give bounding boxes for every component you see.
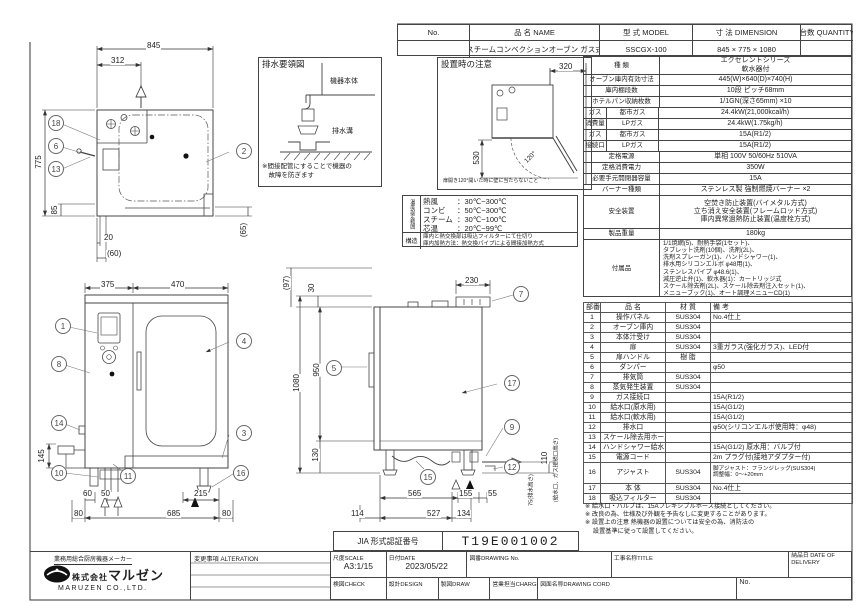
part-material [666, 443, 711, 453]
balloon-8: 8 [51, 356, 67, 372]
part-note [711, 383, 853, 393]
spec-label: 製品重量 [584, 229, 660, 239]
part-no: 1 [584, 313, 601, 323]
spec-value: 445(W)×640(D)×740(H) [660, 75, 851, 85]
temp-row: 熱風：30℃~300℃ [423, 197, 575, 206]
part-name: 排水口 [601, 423, 666, 433]
install-note: 扉開き120°開いた時に壁に当たらないこと [443, 179, 538, 184]
spec-row-gas-use-lp: 消費量 LPガス 24.4kW(1.75kg/h) [584, 118, 851, 129]
balloon-18: 18 [48, 115, 64, 131]
spec-value: 単相 100V 50/60Hz 510VA [660, 152, 851, 162]
spec-row-weight: 製品重量 180kg [584, 228, 851, 239]
spec-row-gas-conn-city: ガス 都市ガス 15A(R1/2) [584, 129, 851, 140]
spec-value: 10段 ピッチ68mm [660, 86, 851, 96]
drain-body-label: 機器本体 [330, 78, 358, 85]
temp-value: ：30℃~100℃ [457, 215, 507, 224]
part-material: SUS304 [666, 383, 711, 393]
balloon-14: 14 [51, 415, 67, 431]
draw-cell: 製図DRAW [439, 578, 491, 599]
parts-header: 部番 品 名 材 質 備 考 [584, 303, 853, 313]
dim-375: 375 [100, 281, 115, 289]
spec-label: 定格電源 [584, 152, 660, 162]
parts-row: 11給水口(軟水用)15A(G1/2) [584, 413, 853, 423]
dim-565: 565 [407, 490, 422, 498]
balloon-4: 4 [236, 333, 252, 349]
structure-header-text: 構造 [405, 236, 417, 245]
part-name: 給水口(原水用) [601, 403, 666, 413]
spec-row-pan: ホテルパン収納枚数 1/1GN(深さ65mm) ×10 [584, 96, 851, 107]
check-label: 検図CHECK [333, 579, 365, 588]
part-name: 操作パネル [601, 313, 666, 323]
drawing-cord-label: 図面名称DRAWING CORD [540, 579, 610, 588]
part-no: 15 [584, 453, 601, 463]
spec-row-kind: 種 類 エクセレントシリーズ軟水器付 [584, 57, 851, 74]
dim-130: 130 [312, 448, 320, 461]
dim-950: 950 [313, 363, 321, 376]
dim-470: 470 [170, 281, 185, 289]
dim-530: 530 [473, 151, 481, 164]
product-model: SSCGX-100 [600, 41, 693, 57]
balloon-16: 16 [233, 465, 249, 481]
spec-label: 都市ガス [607, 108, 659, 118]
accessory-line: メニューブック(1)、オート調理メニューCD(1) [663, 290, 790, 297]
part-note [711, 323, 853, 333]
date-cell: 日付DATE 2023/05/22 [387, 552, 468, 577]
parts-row: 15電源コード2m プラグ付(接地アダプター付) [584, 453, 853, 463]
part-no: 3 [584, 333, 601, 343]
part-material [666, 363, 711, 373]
company-name-en: MARUZEN CO.,LTD. [58, 585, 148, 592]
spec-value: 空焚き防止装置(バイメタル方式) [704, 200, 807, 208]
part-material [666, 423, 711, 433]
part-material: SUS304 [666, 323, 711, 333]
spec-label: LPガス [607, 141, 659, 151]
jia-number: T19E001002 [443, 532, 578, 550]
part-name: 扉 [601, 343, 666, 353]
delivery-cell: 納品日 DATE OF DELIVERY [789, 552, 851, 577]
jia-certification: JIA 形式認証番号 T19E001002 [333, 531, 579, 551]
dim-65paren: (65) [240, 223, 248, 237]
part-no: 17 [584, 484, 601, 494]
temp-value: ：30℃~300℃ [457, 197, 507, 206]
part-name: ダンパー [601, 363, 666, 373]
title-table: No. 品 名 NAME 型 式 MODEL 寸 法 DIMENSION 台数 … [397, 24, 852, 56]
parts-row: 9ガス接続口15A(R1/2) [584, 393, 853, 403]
title-col-name: 品 名 NAME [470, 25, 600, 41]
part-name: 扉ハンドル [601, 353, 666, 363]
project-title-label: 工事名称TITLE [614, 553, 653, 562]
dim-110-note: (給水口、ガス接続口高さ) [554, 438, 560, 502]
parts-header-material: 材 質 [666, 303, 711, 313]
temp-row: スチーム：30℃~100℃ [423, 215, 575, 224]
balloon-5: 5 [326, 360, 342, 376]
spec-label: 都市ガス [607, 130, 659, 140]
dim-80-right: 80 [221, 510, 232, 518]
spec-value: 15A(R1/2) [659, 130, 851, 140]
dim-155: 155 [458, 490, 473, 498]
project-title-cell: 工事名称TITLE [612, 552, 789, 577]
footnote-line: 設置基準に従って設置してください。 [585, 528, 775, 536]
company-name-main: マルゼン [108, 568, 164, 583]
part-no: 18 [584, 494, 601, 504]
part-name: ガス接続口 [601, 393, 666, 403]
spec-row-burner: バーナー種類 ステンレス製 強制燃焼バーナー ×2 [584, 184, 851, 195]
balloon-9: 9 [504, 419, 520, 435]
spec-label: バーナー種類 [584, 185, 660, 195]
parts-table-body: 1操作パネルSUS304No.4仕上2オーブン庫内SUS3043本体汁受けSUS… [584, 313, 853, 504]
part-name: 排気筒 [601, 373, 666, 383]
company-block: 業務用総合厨房機器メーカー 株式会社マルゼン MARUZEN CO.,LTD. [30, 551, 190, 600]
dim-775: 775 [35, 155, 43, 168]
spec-value: 180kg [660, 229, 851, 239]
company-name: 株式会社マルゼン [72, 565, 164, 584]
spec-value: 24.4kW(21,000kcal/h) [659, 108, 851, 118]
balloon-6: 6 [48, 138, 64, 154]
drain-title: 排水要領図 [262, 60, 305, 69]
parts-row: 14ハンドシャワー給水口15A(G1/2) 原水用：バルブ付 [584, 443, 853, 453]
dim-80-left: 80 [73, 510, 84, 518]
delivery-label: 納品日 DATE OF DELIVERY [791, 553, 851, 567]
balloon-11: 11 [120, 468, 136, 484]
draw-label: 製図DRAW [441, 579, 470, 588]
spec-row-gas-use-city: ガス 都市ガス 24.4kW(21,000kcal/h) [584, 107, 851, 118]
balloon-15: 15 [420, 469, 436, 485]
part-no: 12 [584, 423, 601, 433]
front-view [58, 295, 228, 516]
footnote-line: ※ 給水口・バルブは、15Aフレキシブルホース接続としてください。 [585, 503, 775, 511]
spec-label: 種 類 [584, 57, 660, 74]
spec-label: 庫内棚段数 [584, 86, 660, 96]
balloon-3: 3 [236, 425, 252, 441]
dim-55: 55 [487, 490, 498, 498]
parts-row: 6ダンパーφ50 [584, 363, 853, 373]
charge-cell: 営業担当CHARGE [490, 578, 538, 599]
alteration-block: 変更事項 ALTERATION [190, 551, 330, 600]
drain-note-line1: ※間接配管にすることで機器の [262, 164, 352, 171]
spec-value: エクセレントシリーズ [721, 57, 791, 65]
dim-30: 30 [308, 284, 316, 293]
balloon-17: 17 [504, 375, 520, 391]
spec-value: 15A(R1/2) [659, 141, 851, 151]
part-note: φ50(シリコンエルボ使用時：φ48) [711, 423, 853, 433]
part-material: SUS304 [666, 343, 711, 353]
balloon-2: 2 [236, 143, 252, 159]
install-title: 設置時の注意 [441, 60, 492, 69]
parts-row: 10給水口(原水用)15A(G1/2) [584, 403, 853, 413]
balloon-12: 12 [504, 459, 520, 475]
parts-row: 2オーブン庫内SUS304 [584, 323, 853, 333]
product-quantity [801, 41, 853, 57]
part-material [666, 393, 711, 403]
part-no: 7 [584, 373, 601, 383]
balloon-10: 10 [51, 465, 67, 481]
dim-60paren: (60) [106, 250, 122, 258]
dim-97paren: (97) [283, 276, 291, 290]
parts-row: 7排気筒SUS304 [584, 373, 853, 383]
dim-50: 50 [100, 490, 111, 498]
parts-row: 12排水口φ50(シリコンエルボ使用時：φ48) [584, 423, 853, 433]
dim-75-drain: 75(排水高さ) [529, 474, 535, 506]
dim-20: 20 [103, 234, 114, 242]
title-col-no: No. [398, 25, 470, 41]
part-no: 13 [584, 433, 601, 443]
part-name: 電源コード [601, 453, 666, 463]
spec-value: 立ち消え安全装置(フレームロッド方式) [694, 208, 817, 216]
title-col-model: 型 式 MODEL [600, 25, 693, 41]
spec-value: ステンレス製 強制燃焼バーナー ×2 [660, 185, 851, 195]
parts-header-name: 品 名 [601, 303, 666, 313]
part-note: No.4仕上 [711, 484, 853, 494]
accessory-line: スケール除去剤(2L)、スケール除去剤注入セット(1)、 [663, 283, 809, 290]
no-cell: No. [737, 578, 851, 599]
parts-row: 1操作パネルSUS304No.4仕上 [584, 313, 853, 323]
part-no: 5 [584, 353, 601, 363]
alteration-label: 変更事項 ALTERATION [194, 554, 258, 563]
spec-row-power: 定格電源 単相 100V 50/60Hz 510VA [584, 151, 851, 162]
check-cell: 検図CHECK [331, 578, 387, 599]
part-material: 樹 脂 [666, 353, 711, 363]
title-col-dimension: 寸 法 DIMENSION [693, 25, 801, 41]
part-material [666, 403, 711, 413]
footnote-line: ※ 設置上の注意 熱機器の設置については安全の為、消防法の [585, 519, 775, 527]
part-no: 8 [584, 383, 601, 393]
part-name: スケール除去用ホース [601, 433, 666, 443]
part-name: 本 体 [601, 484, 666, 494]
accessory-line: ステンレスパイプ φ48.6(1)、 [663, 269, 743, 276]
side-dimensions [286, 268, 556, 522]
spec-label: ホテルパン収納枚数 [584, 97, 660, 107]
part-note: No.4仕上 [711, 313, 853, 323]
jia-label: JIA 形式認証番号 [334, 532, 443, 550]
spec-row-breaker: 必要手元開閉器容量 15A [584, 173, 851, 184]
part-note: 15A(R1/2) [711, 393, 853, 403]
part-no: 16 [584, 463, 601, 484]
dim-230: 230 [464, 277, 479, 285]
dim-110: 110 [541, 452, 549, 465]
scale-cell: 尺度SCALE A3:1/15 [331, 552, 387, 577]
accessory-line: 減圧逆止弁(1)、軟水器(1)：カートリッジ式 [663, 276, 782, 283]
part-material: SUS304 [666, 313, 711, 323]
accessory-line: 排水用シリコンエルボ φ48用(1)、 [663, 261, 756, 268]
part-material [666, 433, 711, 443]
part-name: 吸込フィルター [601, 494, 666, 504]
part-no: 2 [584, 323, 601, 333]
spec-table: 種 類 エクセレントシリーズ軟水器付 オーブン庫内有効寸法 445(W)×640… [583, 56, 852, 297]
dim-845: 845 [146, 42, 161, 50]
product-dimension: 845 × 775 × 1080 [693, 41, 801, 57]
drawing-no-label: 図番DRAWING No. [469, 553, 519, 562]
spec-value: 350W [660, 163, 851, 173]
scale-value: A3:1/15 [331, 561, 386, 571]
design-cell: 設計DESIGN [387, 578, 439, 599]
parts-row: 5扉ハンドル樹 脂 [584, 353, 853, 363]
temp-value: ：50℃~300℃ [457, 206, 507, 215]
part-name: 本体汁受け [601, 333, 666, 343]
title-col-quantity: 台数 QUANTITY [801, 25, 853, 41]
spec-value: 24.4kW(1.75kg/h) [659, 119, 851, 129]
structure-line: 庫内と熱交換部は吸込フィルターにて仕切り [423, 234, 575, 241]
temp-range-header-text: 温度設定範囲 [409, 199, 415, 229]
part-material: SUS304 [666, 484, 711, 494]
dim-312: 312 [110, 57, 125, 65]
parts-table: 部番 品 名 材 質 備 考 1操作パネルSUS304No.4仕上2オーブン庫内… [583, 302, 853, 504]
spec-row-watt: 定格消費電力 350W [584, 162, 851, 173]
part-name: ハンドシャワー給水口 [601, 443, 666, 453]
part-note [711, 333, 853, 343]
spec-row-accessories: 付属品 1/1焼網(5)、耐熱手袋(1セット)、タブレット洗剤(10個)、洗剤(… [584, 239, 851, 297]
part-note: 脚アジャスト：フランジレッグ(SUS304) 調整幅：0〜+20mm [711, 463, 853, 484]
spec-label: 付属品 [584, 240, 660, 297]
parts-header-note: 備 考 [711, 303, 853, 313]
spec-label: 安全装置 [584, 196, 660, 228]
dim-527: 527 [426, 510, 441, 518]
dim-685: 685 [166, 510, 181, 518]
dim-134: 134 [456, 510, 471, 518]
spec-value: 庫内異常過熱防止装置(温度栓方式) [701, 216, 811, 224]
part-material [666, 453, 711, 463]
drain-gutter-label: 排水溝 [332, 128, 353, 135]
part-material: SUS304 [666, 463, 711, 484]
part-note [711, 494, 853, 504]
dim-114: 114 [350, 510, 365, 518]
spec-label: LPガス [607, 119, 659, 129]
temp-mode: コンビ [423, 206, 457, 215]
structure-line: 庫内加熱方法：熱交換パイプによる間接加熱方式 [423, 241, 575, 248]
design-label: 設計DESIGN [389, 579, 423, 588]
part-note: 15A(G1/2) 原水用：バルブ付 [711, 443, 853, 453]
dim-215: 215 [193, 490, 208, 498]
charge-label: 営業担当CHARGE [492, 579, 538, 588]
spec-label: 定格消費電力 [584, 163, 660, 173]
part-material: SUS304 [666, 494, 711, 504]
product-no [398, 41, 470, 57]
dim-60: 60 [82, 490, 93, 498]
title-block: 尺度SCALE A3:1/15 日付DATE 2023/05/22 図番DRAW… [330, 551, 852, 600]
part-note [711, 353, 853, 363]
part-note: 3重ガラス(強化ガラス)、LED付 [711, 343, 853, 353]
temp-row: コンビ：50℃~300℃ [423, 206, 575, 215]
spec-row-cavity: オーブン庫内有効寸法 445(W)×640(D)×740(H) [584, 74, 851, 85]
side-view [369, 297, 521, 489]
part-note: 15A(G1/2) [711, 413, 853, 423]
parts-header-no: 部番 [584, 303, 601, 313]
part-material: SUS304 [666, 333, 711, 343]
part-note: 2m プラグ付(接地アダプター付) [711, 453, 853, 463]
part-note [711, 373, 853, 383]
part-no: 11 [584, 413, 601, 423]
balloon-13: 13 [48, 161, 64, 177]
spec-value: 軟水器付 [742, 66, 770, 74]
temp-range-header: 温度設定範囲 [403, 196, 421, 232]
spec-value: 1/1GN(深さ65mm) ×10 [660, 97, 851, 107]
spec-accessories-lines: 1/1焼網(5)、耐熱手袋(1セット)、タブレット洗剤(10個)、洗剤(2L)、… [660, 240, 851, 297]
parts-row: 8蒸気発生装置SUS304 [584, 383, 853, 393]
part-material: SUS304 [666, 373, 711, 383]
temperature-table: 温度設定範囲 熱風：30℃~300℃ コンビ：50℃~300℃ スチーム：30℃… [402, 195, 578, 247]
part-name: 給水口(軟水用) [601, 413, 666, 423]
dim-1080: 1080 [293, 374, 301, 392]
date-value: 2023/05/22 [387, 561, 467, 571]
balloon-7: 7 [513, 286, 529, 302]
balloon-1: 1 [55, 318, 71, 334]
spec-label: オーブン庫内有効寸法 [584, 75, 660, 85]
part-note: φ50 [711, 363, 853, 373]
parts-row: 3本体汁受けSUS304 [584, 333, 853, 343]
parts-row: 13スケール除去用ホース [584, 433, 853, 443]
install-note-box [437, 57, 592, 190]
footnotes: ※ 給水口・バルブは、15Aフレキシブルホース接続としてください。※ 改良の為、… [585, 503, 775, 536]
spec-row-shelf: 庫内棚段数 10段 ピッチ68mm [584, 85, 851, 96]
part-name: アジャスト [601, 463, 666, 484]
company-tagline: 業務用総合厨房機器メーカー [54, 554, 132, 565]
parts-row: 4扉SUS3043重ガラス(強化ガラス)、LED付 [584, 343, 853, 353]
dim-145: 145 [38, 449, 46, 462]
no-label: No. [739, 579, 750, 586]
plan-dimensions [42, 46, 252, 262]
spec-label: 必要手元開閉器容量 [584, 174, 660, 184]
part-note [711, 433, 853, 443]
part-no: 14 [584, 443, 601, 453]
dim-85: 85 [51, 206, 59, 215]
part-name: オーブン庫内 [601, 323, 666, 333]
dim-320: 320 [558, 63, 573, 71]
part-material [666, 413, 711, 423]
parts-row: 17本 体SUS304No.4仕上 [584, 484, 853, 494]
drain-note-line2: 故障を防ぎます [262, 173, 314, 180]
part-note: 15A(G1/2) [711, 403, 853, 413]
spec-value: 15A [660, 174, 851, 184]
product-name: スチームコンベクションオーブン ガス式 [470, 41, 600, 57]
spec-row-safety: 安全装置 空焚き防止装置(バイメタル方式) 立ち消え安全装置(フレームロッド方式… [584, 195, 851, 228]
part-no: 10 [584, 403, 601, 413]
parts-row: 16アジャストSUS304脚アジャスト：フランジレッグ(SUS304) 調整幅：… [584, 463, 853, 484]
spec-row-gas-conn-lp: 接続口 LPガス 15A(R1/2) [584, 140, 851, 151]
drawing-sheet: No. 品 名 NAME 型 式 MODEL 寸 法 DIMENSION 台数 … [0, 0, 866, 612]
drawing-cord-cell: 図面名称DRAWING CORD [538, 578, 737, 599]
temp-mode: 熱風 [423, 197, 457, 206]
structure-header: 構造 [403, 233, 421, 249]
parts-row: 18吸込フィルターSUS304 [584, 494, 853, 504]
part-no: 9 [584, 393, 601, 403]
part-no: 6 [584, 363, 601, 373]
part-name: 蒸気発生装置 [601, 383, 666, 393]
company-name-prefix: 株式会社 [72, 573, 108, 582]
drawing-no-cell: 図番DRAWING No. [467, 552, 611, 577]
part-no: 4 [584, 343, 601, 353]
